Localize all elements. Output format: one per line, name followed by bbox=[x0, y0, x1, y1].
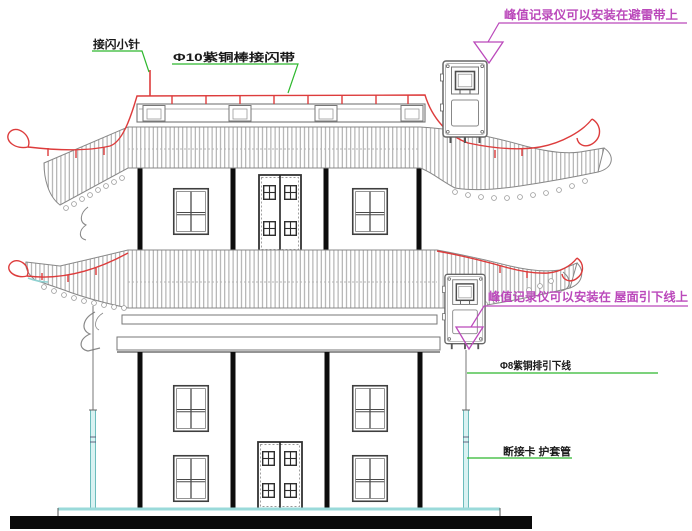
disconnect-card-label: 断接卡 护套管 bbox=[503, 445, 572, 458]
air-terminal-label: 接闪小针 bbox=[93, 37, 140, 51]
ridge-ornament bbox=[229, 106, 251, 122]
annotation-disconnect-card: 断接卡 护套管 bbox=[467, 445, 572, 458]
callout-triangle-icon bbox=[474, 42, 503, 63]
double-door bbox=[258, 442, 302, 509]
fascia-beams bbox=[117, 315, 440, 350]
annotation-recorder-on-belt: 峰值记录仪可以安装在避雷带上 bbox=[474, 7, 687, 63]
peak-recorder-device-upper bbox=[440, 61, 487, 143]
protective-sleeve bbox=[91, 410, 96, 508]
column bbox=[138, 352, 143, 509]
down-conductor-left bbox=[89, 306, 97, 508]
ground-floor-wall bbox=[117, 352, 440, 509]
column bbox=[417, 168, 422, 252]
window bbox=[353, 189, 388, 235]
annotation-air-terminal: 接闪小针 bbox=[92, 37, 149, 72]
eave-corbel bbox=[80, 207, 88, 240]
ridge-beam bbox=[137, 104, 425, 122]
lightning-belt-label: Φ10紫铜棒接闪带 bbox=[173, 50, 295, 64]
column bbox=[324, 168, 329, 252]
down-conductor-right bbox=[462, 350, 470, 508]
drawing-canvas: 接闪小针 Φ10紫铜棒接闪带 Φ8紫铜排引下线 断接卡 护套管 峰值记录仪可以安… bbox=[0, 0, 692, 531]
window bbox=[174, 189, 209, 235]
recorder-on-downlead-label: 峰值记录仪可以安装在 屋面引下线上 bbox=[488, 289, 688, 304]
window bbox=[353, 456, 388, 502]
ridge-ornament bbox=[143, 106, 165, 122]
annotation-lightning-belt: Φ10紫铜棒接闪带 bbox=[172, 50, 298, 93]
window bbox=[174, 456, 209, 502]
recorder-on-belt-label: 峰值记录仪可以安装在避雷带上 bbox=[504, 7, 678, 22]
annotation-down-conductor: Φ8紫铜排引下线 bbox=[467, 359, 658, 373]
protective-sleeve bbox=[464, 410, 469, 508]
down-conductor-label: Φ8紫铜排引下线 bbox=[500, 359, 571, 372]
peak-recorder-device-lower bbox=[443, 274, 486, 349]
window bbox=[353, 386, 388, 432]
second-floor-wall bbox=[138, 168, 422, 252]
annotation-recorder-on-downlead: 峰值记录仪可以安装在 屋面引下线上 bbox=[456, 289, 688, 349]
column bbox=[231, 352, 236, 509]
column bbox=[138, 168, 143, 252]
ridge-ornament bbox=[315, 106, 337, 122]
elevation-drawing: 接闪小针 Φ10紫铜棒接闪带 Φ8紫铜排引下线 断接卡 护套管 峰值记录仪可以安… bbox=[0, 0, 692, 531]
ground-base-bar bbox=[10, 516, 532, 529]
foundation bbox=[10, 508, 532, 529]
column bbox=[418, 352, 423, 509]
window bbox=[174, 386, 209, 432]
double-door bbox=[259, 175, 301, 252]
column bbox=[231, 168, 236, 252]
column bbox=[325, 352, 330, 509]
ridge-ornament bbox=[401, 106, 423, 122]
